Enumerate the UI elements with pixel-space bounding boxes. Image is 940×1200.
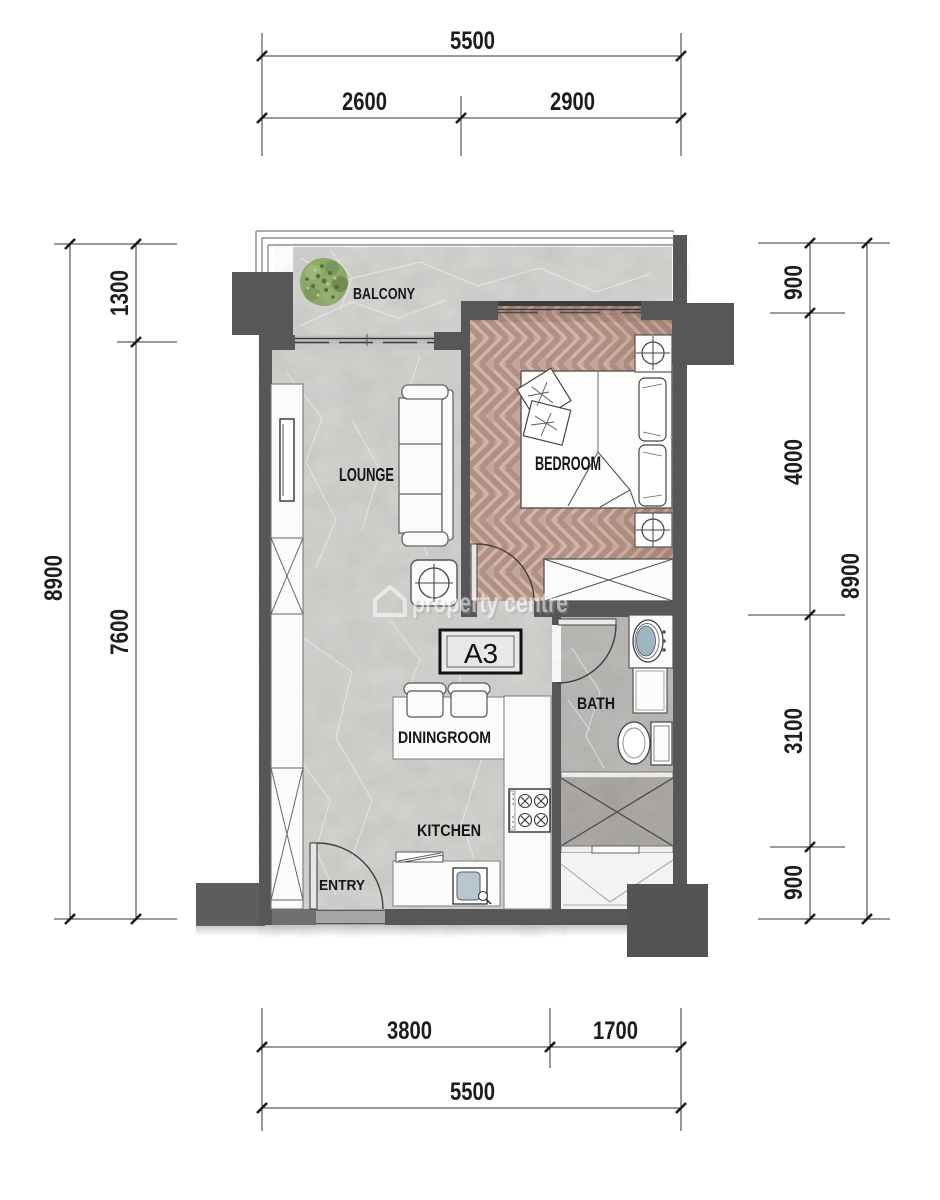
svg-text:5500: 5500 bbox=[450, 27, 495, 55]
svg-text:KITCHEN: KITCHEN bbox=[417, 821, 481, 840]
svg-text:BATH: BATH bbox=[577, 694, 615, 713]
svg-text:3100: 3100 bbox=[780, 708, 808, 754]
svg-text:8900: 8900 bbox=[40, 555, 68, 601]
svg-text:1300: 1300 bbox=[106, 270, 134, 316]
svg-text:7600: 7600 bbox=[106, 609, 134, 655]
svg-text:5500: 5500 bbox=[450, 1078, 495, 1106]
svg-text:property centre: property centre bbox=[412, 587, 568, 618]
svg-text:3800: 3800 bbox=[387, 1017, 432, 1045]
svg-text:900: 900 bbox=[780, 865, 808, 900]
svg-text:8900: 8900 bbox=[837, 553, 865, 599]
svg-text:BEDROOM: BEDROOM bbox=[535, 454, 601, 475]
svg-text:900: 900 bbox=[780, 265, 808, 300]
svg-text:LOUNGE: LOUNGE bbox=[339, 465, 394, 485]
svg-text:DININGROOM: DININGROOM bbox=[398, 728, 491, 747]
svg-text:BALCONY: BALCONY bbox=[353, 286, 415, 303]
svg-text:1700: 1700 bbox=[593, 1017, 638, 1045]
svg-text:4000: 4000 bbox=[780, 439, 808, 485]
svg-text:2900: 2900 bbox=[550, 88, 595, 116]
svg-text:2600: 2600 bbox=[342, 88, 387, 116]
svg-text:ENTRY: ENTRY bbox=[319, 877, 365, 894]
svg-text:A3: A3 bbox=[464, 638, 498, 669]
